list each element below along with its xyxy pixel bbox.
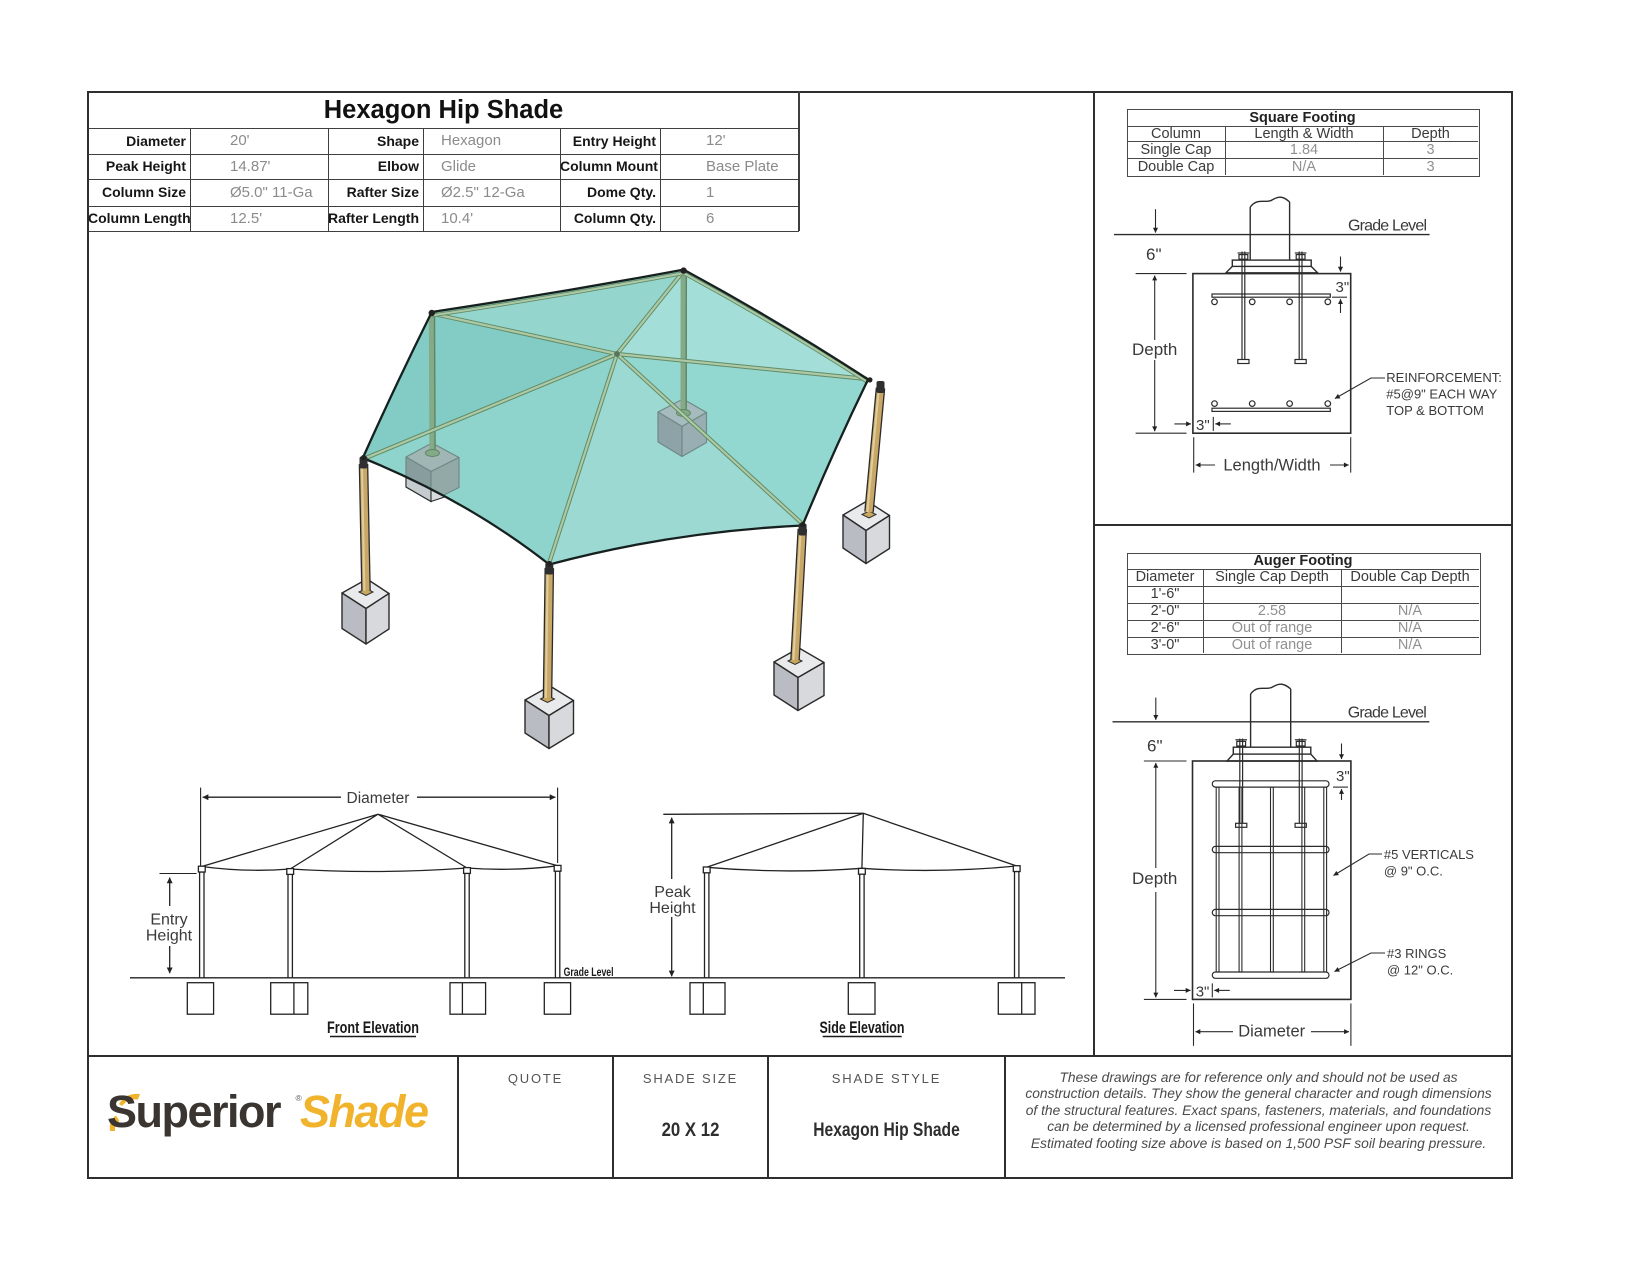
svg-text:3": 3": [1336, 768, 1350, 785]
svg-text:@ 9" O.C.: @ 9" O.C.: [1384, 864, 1443, 879]
svg-text:@ 12" O.C.: @ 12" O.C.: [1387, 963, 1453, 978]
svg-text:Diameter: Diameter: [1238, 1023, 1305, 1041]
svg-text:Depth: Depth: [1132, 869, 1177, 888]
svg-text:3": 3": [1196, 984, 1210, 1001]
svg-text:#5 VERTICALS: #5 VERTICALS: [1384, 847, 1474, 862]
svg-text:6": 6": [1147, 737, 1163, 756]
svg-text:#3 RINGS: #3 RINGS: [1387, 946, 1447, 961]
svg-text:Grade Level: Grade Level: [1348, 705, 1427, 722]
